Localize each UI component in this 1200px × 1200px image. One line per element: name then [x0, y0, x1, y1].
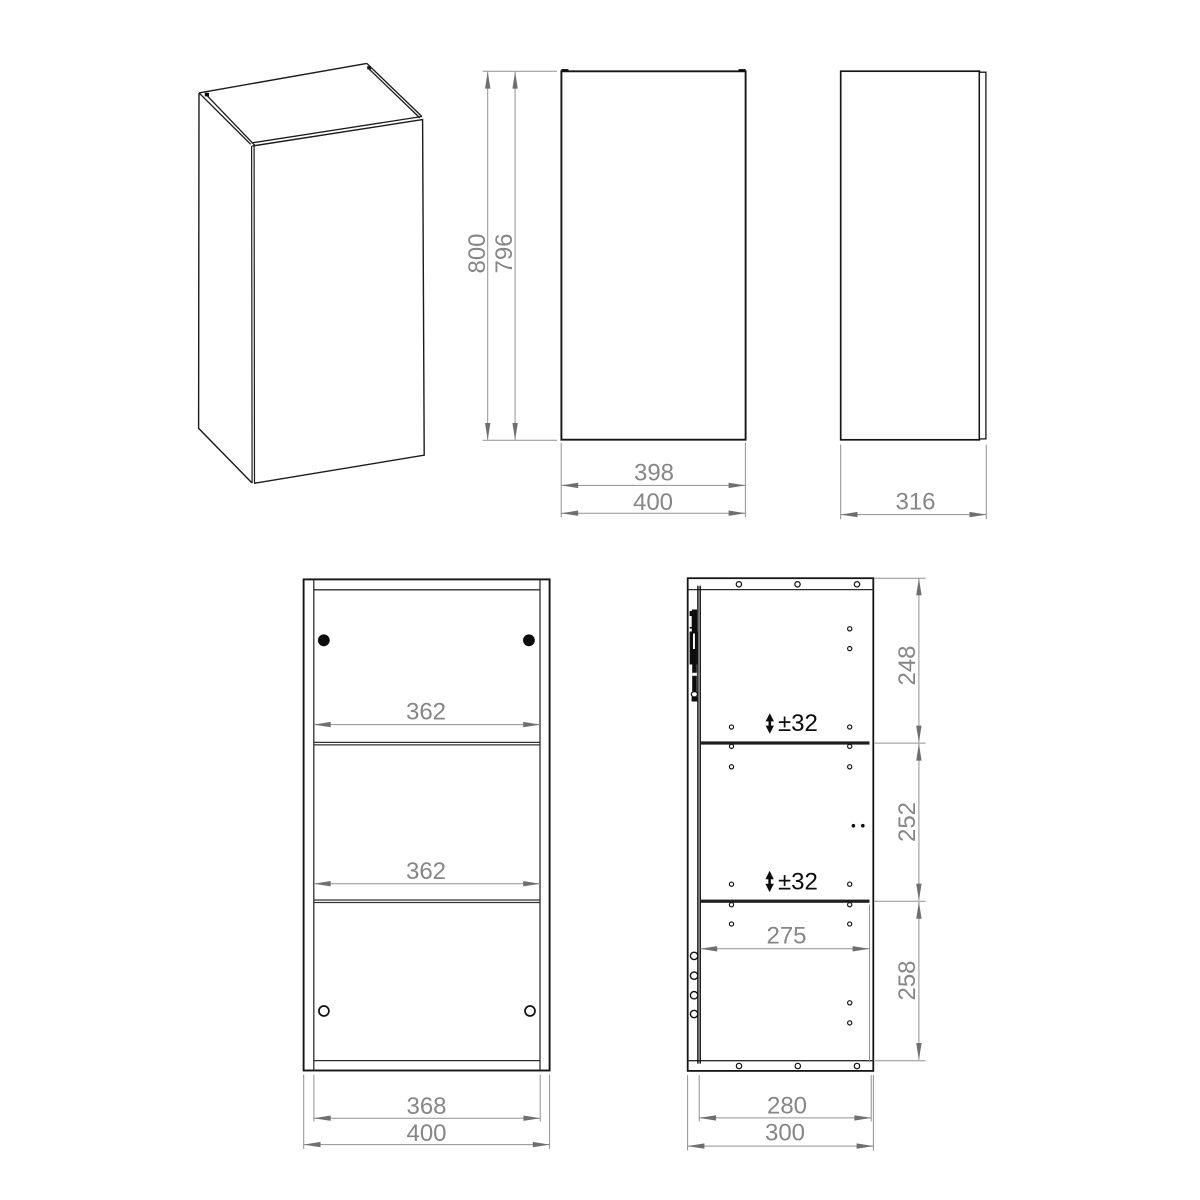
svg-text:252: 252	[894, 802, 921, 842]
svg-text:796: 796	[491, 233, 518, 273]
svg-text:248: 248	[894, 645, 921, 685]
svg-text:398: 398	[634, 460, 674, 487]
svg-text:275: 275	[766, 923, 806, 950]
svg-text:400: 400	[633, 489, 673, 516]
svg-text:258: 258	[894, 960, 921, 1000]
svg-text:800: 800	[464, 233, 491, 273]
svg-text:362: 362	[406, 858, 446, 885]
svg-text:368: 368	[406, 1093, 446, 1120]
svg-text:400: 400	[406, 1120, 446, 1147]
svg-text:±32: ±32	[778, 869, 818, 896]
svg-text:300: 300	[765, 1120, 805, 1147]
svg-text:280: 280	[767, 1093, 807, 1120]
svg-text:316: 316	[895, 488, 935, 515]
svg-text:362: 362	[406, 699, 446, 726]
svg-text:±32: ±32	[778, 710, 818, 737]
